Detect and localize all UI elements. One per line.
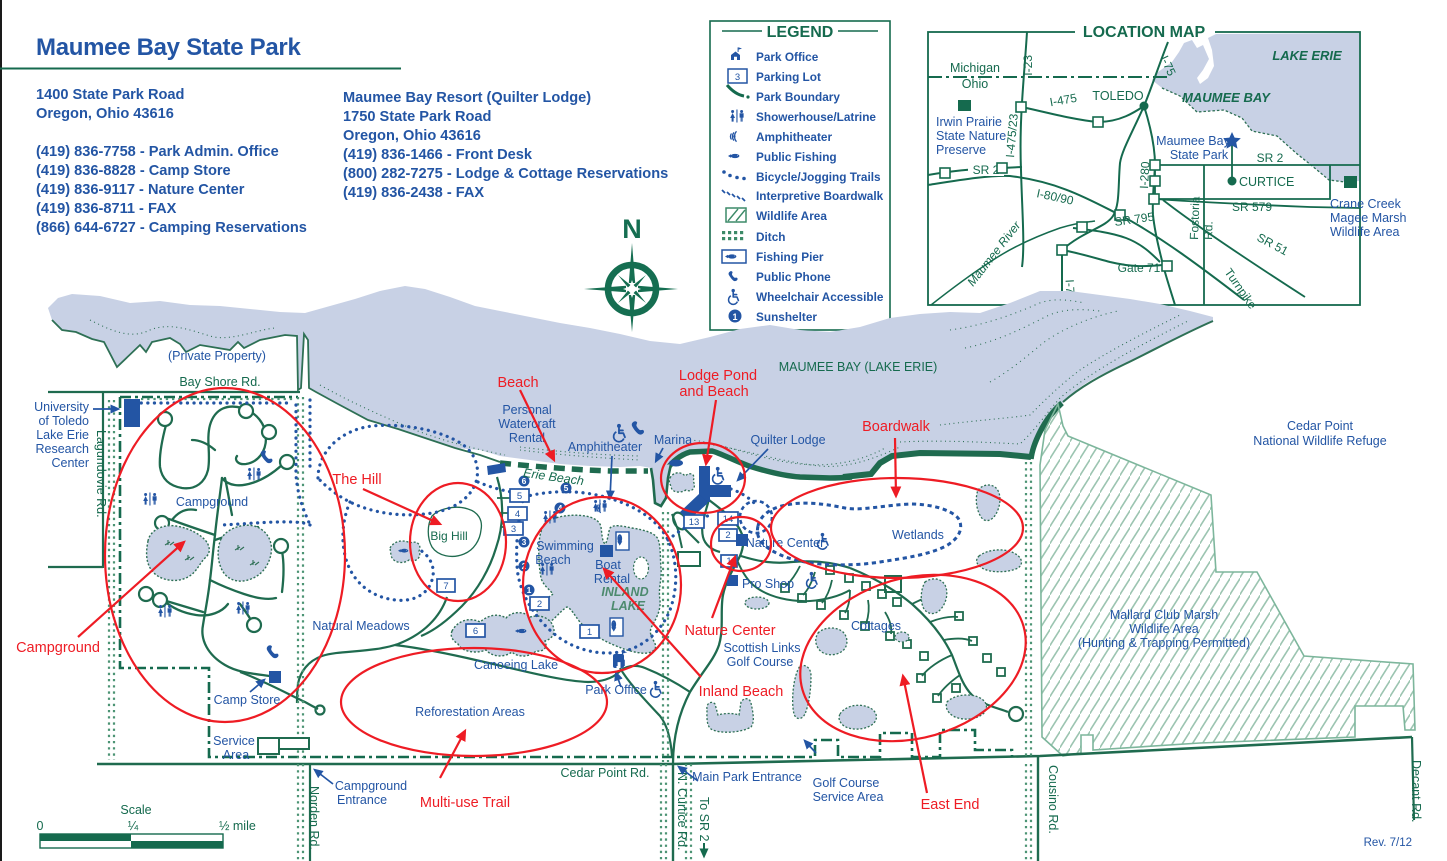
- svg-text:TOLEDO: TOLEDO: [1092, 89, 1143, 103]
- svg-text:Park Boundary: Park Boundary: [756, 90, 840, 104]
- svg-text:2: 2: [537, 599, 542, 610]
- svg-text:Oregon, Ohio 43616: Oregon, Ohio 43616: [343, 128, 481, 144]
- svg-text:6: 6: [473, 626, 478, 637]
- svg-text:Preserve: Preserve: [936, 143, 986, 157]
- svg-text:Park Office: Park Office: [756, 50, 819, 64]
- svg-text:Reforestation Areas: Reforestation Areas: [415, 705, 525, 719]
- svg-text:Watercraft: Watercraft: [498, 417, 556, 431]
- svg-text:5: 5: [517, 491, 522, 502]
- svg-text:LEGEND: LEGEND: [767, 24, 834, 41]
- svg-text:I-23: I-23: [1021, 55, 1035, 76]
- svg-text:Big Hill: Big Hill: [430, 529, 467, 543]
- svg-text:Michigan: Michigan: [950, 61, 1000, 75]
- svg-text:SR 2: SR 2: [1257, 151, 1284, 165]
- svg-text:Wheelchair Accessible: Wheelchair Accessible: [756, 290, 884, 304]
- svg-text:13: 13: [689, 517, 700, 528]
- svg-text:LAKE ERIE: LAKE ERIE: [1272, 48, 1342, 63]
- svg-text:SR 2: SR 2: [973, 163, 1000, 177]
- svg-text:Campground: Campground: [176, 495, 248, 509]
- svg-text:Golf Course: Golf Course: [727, 655, 794, 669]
- svg-text:N: N: [622, 214, 642, 244]
- svg-text:Public Fishing: Public Fishing: [756, 150, 837, 164]
- svg-text:Maumee Bay State Park: Maumee Bay State Park: [36, 34, 301, 61]
- svg-text:Showerhouse/Latrine: Showerhouse/Latrine: [756, 110, 876, 124]
- svg-text:(Private Property): (Private Property): [168, 349, 266, 363]
- svg-text:National Wildlife Refuge: National Wildlife Refuge: [1253, 434, 1386, 448]
- svg-text:Parking Lot: Parking Lot: [756, 70, 821, 84]
- svg-text:Public Phone: Public Phone: [756, 270, 831, 284]
- svg-text:3: 3: [522, 537, 527, 547]
- svg-text:Norden Rd.: Norden Rd.: [307, 786, 321, 850]
- svg-text:Nature Center: Nature Center: [746, 536, 825, 550]
- svg-text:Wildlife Area: Wildlife Area: [1129, 622, 1199, 636]
- svg-text:Fostoria: Fostoria: [1187, 196, 1203, 240]
- svg-text:Crane Creek: Crane Creek: [1330, 197, 1402, 211]
- svg-text:Maumee Bay Resort (Quilter Lod: Maumee Bay Resort (Quilter Lodge): [343, 90, 591, 106]
- svg-text:(419) 836-8828 - Camp Store: (419) 836-8828 - Camp Store: [36, 163, 231, 179]
- svg-text:East End: East End: [921, 797, 980, 813]
- svg-text:Scottish Links: Scottish Links: [723, 641, 800, 655]
- svg-text:Mallard Club Marsh: Mallard Club Marsh: [1110, 608, 1218, 622]
- svg-text:The Hill: The Hill: [332, 472, 381, 488]
- svg-text:Ditch: Ditch: [756, 230, 786, 244]
- svg-text:and Beach: and Beach: [679, 384, 748, 400]
- svg-text:Lodge Pond: Lodge Pond: [679, 368, 757, 384]
- svg-text:University: University: [34, 400, 90, 414]
- svg-text:Interpretive Boardwalk: Interpretive Boardwalk: [756, 189, 884, 203]
- svg-text:2: 2: [725, 530, 730, 541]
- svg-text:To SR 2: To SR 2: [697, 797, 711, 842]
- svg-text:I-280: I-280: [1137, 161, 1152, 189]
- svg-text:3: 3: [511, 524, 516, 535]
- svg-text:Maumee Bay: Maumee Bay: [1156, 134, 1230, 148]
- svg-text:MAUMEE BAY (LAKE ERIE): MAUMEE BAY (LAKE ERIE): [779, 360, 938, 374]
- svg-text:Wildlife Area: Wildlife Area: [756, 209, 827, 223]
- svg-text:Pro Shop: Pro Shop: [742, 577, 794, 591]
- svg-text:Park Office: Park Office: [585, 683, 647, 697]
- svg-text:Beach: Beach: [535, 553, 570, 567]
- svg-text:Cottages: Cottages: [851, 619, 901, 633]
- svg-text:Gate 71: Gate 71: [1118, 261, 1161, 275]
- svg-text:Lake Erie: Lake Erie: [36, 428, 89, 442]
- svg-text:Wildlife Area: Wildlife Area: [1330, 225, 1400, 239]
- svg-text:Service Area: Service Area: [813, 790, 884, 804]
- svg-text:Cousino Rd.: Cousino Rd.: [1046, 765, 1060, 834]
- svg-text:Lagundovie Rd.: Lagundovie Rd.: [94, 430, 108, 518]
- svg-text:Irwin Prairie: Irwin Prairie: [936, 115, 1002, 129]
- svg-text:Campground: Campground: [335, 779, 407, 793]
- svg-text:Nature Center: Nature Center: [684, 623, 775, 639]
- svg-text:Wetlands: Wetlands: [892, 528, 944, 542]
- svg-text:(866) 644-6727 - Camping Reser: (866) 644-6727 - Camping Reservations: [36, 220, 307, 236]
- svg-text:Fishing Pier: Fishing Pier: [756, 250, 824, 264]
- svg-text:1400 State Park Road: 1400 State Park Road: [36, 87, 184, 103]
- svg-text:Decant Rd.: Decant Rd.: [1409, 760, 1423, 823]
- svg-text:Rental: Rental: [509, 431, 545, 445]
- svg-text:SR 579: SR 579: [1232, 200, 1272, 214]
- svg-text:Campground: Campground: [16, 640, 100, 656]
- svg-text:Amphitheater: Amphitheater: [568, 440, 642, 454]
- svg-text:0: 0: [37, 819, 44, 833]
- svg-text:¼: ¼: [128, 819, 139, 833]
- svg-text:Scale: Scale: [120, 803, 151, 817]
- svg-text:3: 3: [735, 72, 740, 83]
- svg-text:Boardwalk: Boardwalk: [862, 419, 930, 435]
- svg-text:Amphitheater: Amphitheater: [756, 130, 832, 144]
- svg-text:(419) 836-9117 - Nature Center: (419) 836-9117 - Nature Center: [36, 182, 245, 198]
- svg-text:Main Park Entrance: Main Park Entrance: [692, 770, 802, 784]
- svg-text:Rd.: Rd.: [1201, 221, 1216, 240]
- svg-text:Natural Meadows: Natural Meadows: [312, 619, 409, 633]
- svg-text:7: 7: [443, 581, 448, 592]
- svg-text:Inland Beach: Inland Beach: [699, 684, 784, 700]
- svg-text:Rev. 7/12: Rev. 7/12: [1364, 837, 1412, 849]
- svg-text:1: 1: [732, 312, 737, 322]
- svg-text:Area: Area: [223, 748, 249, 762]
- svg-text:Camp Store: Camp Store: [214, 693, 281, 707]
- svg-text:1750 State Park Road: 1750 State Park Road: [343, 109, 491, 125]
- svg-text:Swimming: Swimming: [536, 539, 594, 553]
- svg-text:State Park: State Park: [1170, 148, 1229, 162]
- svg-text:(419) 836-1466 - Front Desk: (419) 836-1466 - Front Desk: [343, 147, 533, 163]
- svg-text:1: 1: [527, 585, 532, 595]
- svg-text:MAUMEE BAY: MAUMEE BAY: [1182, 90, 1271, 105]
- svg-text:Multi-use Trail: Multi-use Trail: [420, 795, 510, 811]
- svg-text:(Hunting & Trapping Permitted): (Hunting & Trapping Permitted): [1078, 636, 1250, 650]
- svg-text:1: 1: [587, 627, 592, 638]
- svg-text:Bay Shore Rd.: Bay Shore Rd.: [179, 375, 260, 389]
- svg-text:Cedar Point: Cedar Point: [1287, 419, 1354, 433]
- svg-text:Magee Marsh: Magee Marsh: [1330, 211, 1406, 225]
- svg-text:State Nature: State Nature: [936, 129, 1006, 143]
- svg-text:Ohio: Ohio: [962, 77, 988, 91]
- svg-text:Oregon, Ohio 43616: Oregon, Ohio 43616: [36, 106, 174, 122]
- svg-text:of Toledo: of Toledo: [38, 414, 89, 428]
- svg-text:Service: Service: [213, 734, 255, 748]
- svg-text:Research: Research: [36, 442, 90, 456]
- svg-text:Canoeing Lake: Canoeing Lake: [474, 658, 558, 672]
- svg-text:4: 4: [515, 509, 520, 520]
- svg-text:LOCATION MAP: LOCATION MAP: [1083, 24, 1206, 41]
- svg-text:Entrance: Entrance: [337, 793, 387, 807]
- svg-text:CURTICE: CURTICE: [1239, 175, 1294, 189]
- svg-text:Bicycle/Jogging Trails: Bicycle/Jogging Trails: [756, 170, 881, 184]
- svg-text:Boat: Boat: [595, 558, 621, 572]
- svg-text:(419) 836-7758 - Park Admin. O: (419) 836-7758 - Park Admin. Office: [36, 144, 279, 160]
- svg-text:Center: Center: [51, 456, 89, 470]
- svg-text:Cedar Point Rd.: Cedar Point Rd.: [561, 766, 650, 780]
- svg-text:Golf Course: Golf Course: [813, 776, 880, 790]
- svg-text:N. Curtice Rd.: N. Curtice Rd.: [675, 772, 689, 851]
- svg-text:(419) 836-8711 - FAX: (419) 836-8711 - FAX: [36, 201, 177, 217]
- svg-text:(419) 836-2438 - FAX: (419) 836-2438 - FAX: [343, 185, 484, 201]
- svg-text:½ mile: ½ mile: [219, 819, 256, 833]
- svg-text:Quilter Lodge: Quilter Lodge: [750, 433, 825, 447]
- svg-text:(800) 282-7275 - Lodge & Cotta: (800) 282-7275 - Lodge & Cottage Reserva…: [343, 166, 668, 182]
- svg-text:Beach: Beach: [497, 375, 538, 391]
- svg-text:Sunshelter: Sunshelter: [756, 310, 817, 324]
